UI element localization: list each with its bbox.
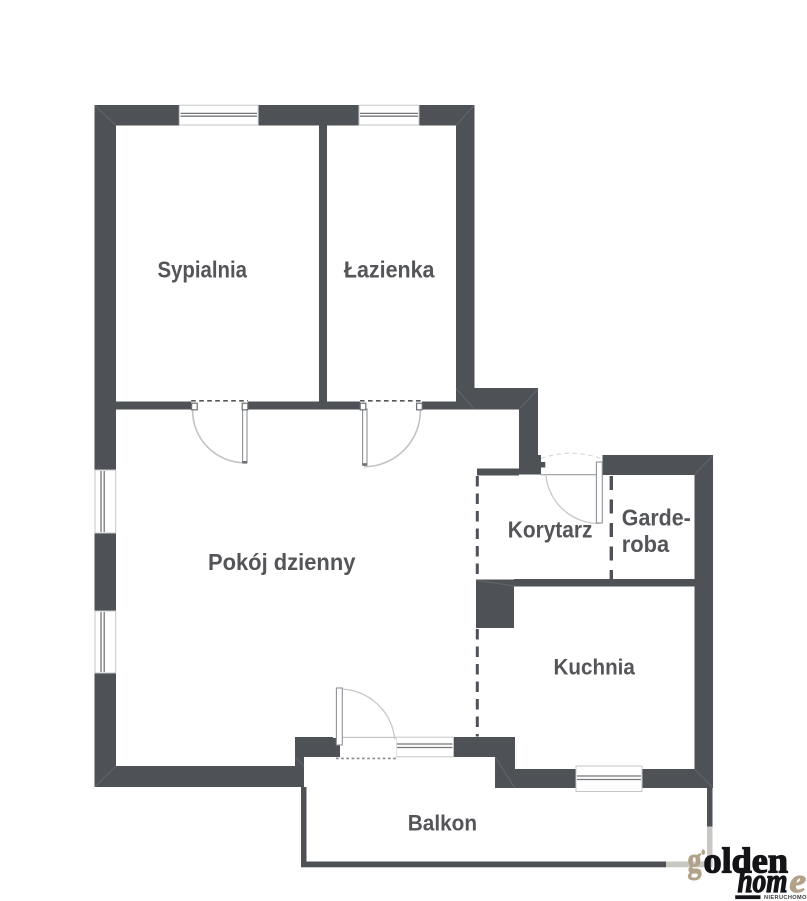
svg-text:NIERUCHOMOŚCI: NIERUCHOMOŚCI [764,894,807,901]
svg-text:Pokój dzienny: Pokój dzienny [208,549,356,575]
svg-text:Garde-: Garde- [622,505,691,531]
svg-text:g: g [688,841,702,881]
svg-text:roba: roba [622,531,670,557]
svg-text:Balkon: Balkon [408,811,477,836]
svg-text:Sypialnia: Sypialnia [157,257,247,283]
svg-text:Łazienka: Łazienka [344,257,435,283]
svg-text:Kuchnia: Kuchnia [554,655,636,680]
svg-text:Korytarz: Korytarz [508,516,593,542]
